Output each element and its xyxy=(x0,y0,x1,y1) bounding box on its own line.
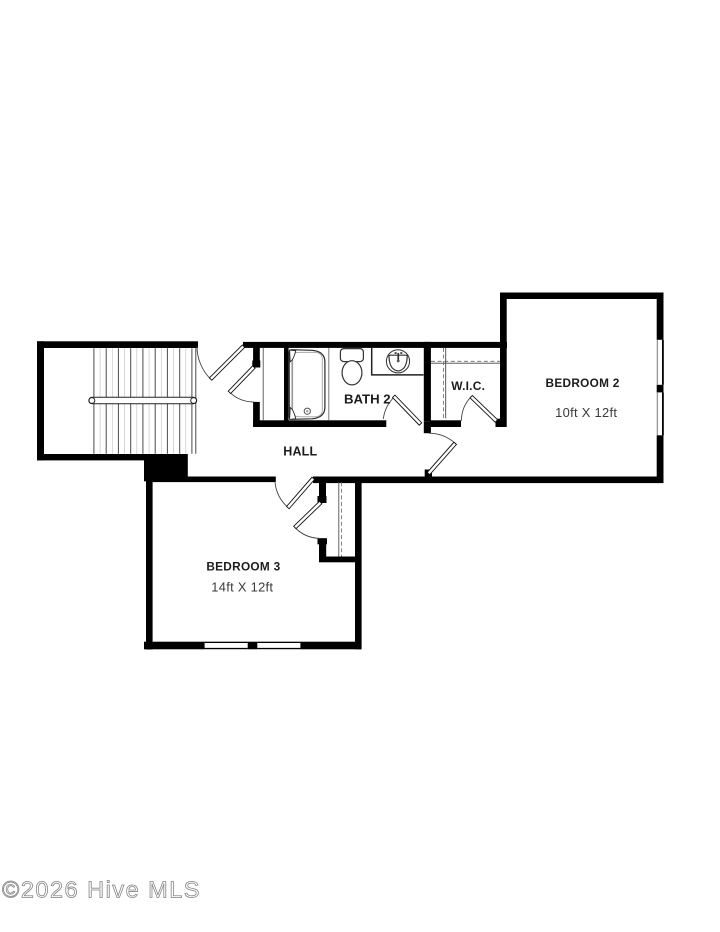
svg-text:BEDROOM 2: BEDROOM 2 xyxy=(546,376,620,390)
svg-text:14ft X 12ft: 14ft X 12ft xyxy=(211,579,273,594)
svg-text:W.I.C.: W.I.C. xyxy=(451,379,485,393)
svg-text:©2026 Hive MLS: ©2026 Hive MLS xyxy=(2,877,201,903)
svg-text:HALL: HALL xyxy=(283,444,317,458)
svg-text:10ft X 12ft: 10ft X 12ft xyxy=(555,405,617,420)
svg-text:BEDROOM 3: BEDROOM 3 xyxy=(206,560,280,574)
svg-text:BATH 2: BATH 2 xyxy=(344,392,391,407)
